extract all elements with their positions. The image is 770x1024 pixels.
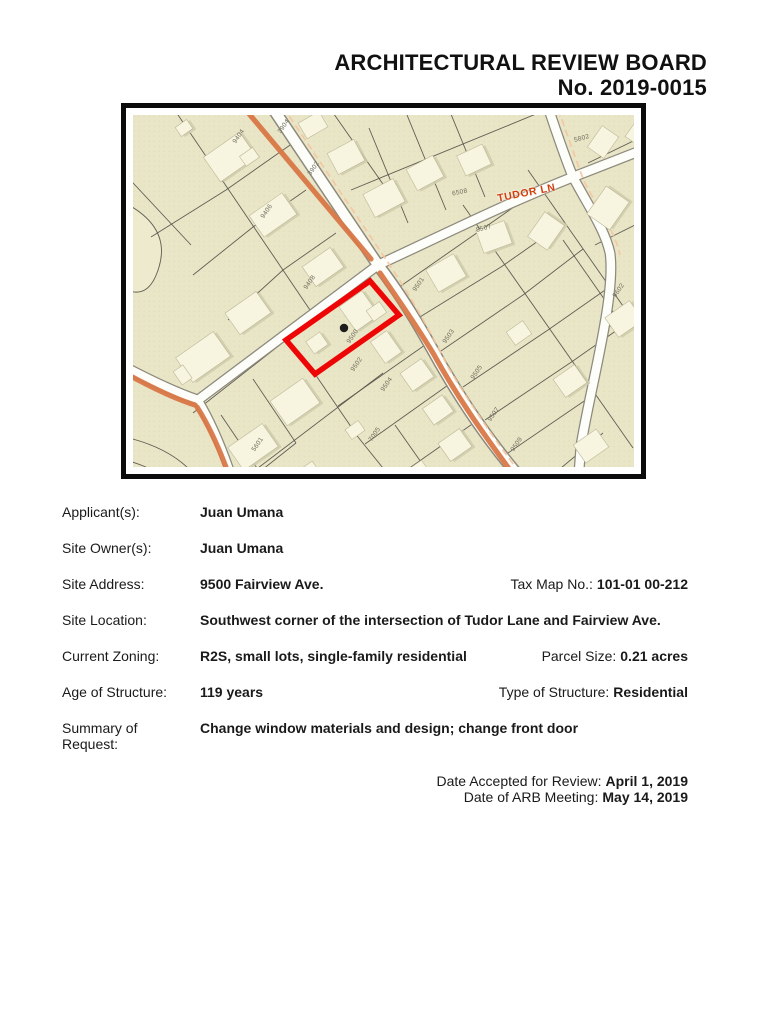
- subject-parcel-marker: [340, 324, 348, 332]
- field-label: Date of ARB Meeting:: [464, 789, 599, 805]
- field-label: Site Location:: [62, 612, 197, 628]
- field-label: Tax Map No.:: [510, 576, 592, 592]
- field-type-of-structure: Type of Structure:Residential: [499, 684, 688, 700]
- date-arb-meeting-row: Date of ARB Meeting:May 14, 2019: [437, 790, 688, 806]
- field-value: 119 years: [200, 684, 263, 700]
- location-map-figure: 9404390439029406940895029504950195039505…: [121, 103, 646, 479]
- page-title: ARCHITECTURAL REVIEW BOARD: [334, 50, 707, 75]
- document-header: ARCHITECTURAL REVIEW BOARD No. 2019-0015: [334, 50, 707, 100]
- field-value: 9500 Fairview Ave.: [200, 576, 323, 592]
- field-value: 0.21 acres: [620, 648, 688, 664]
- field-value: Juan Umana: [200, 504, 283, 520]
- field-label: Date Accepted for Review:: [437, 773, 602, 789]
- field-label: Site Owner(s):: [62, 540, 197, 556]
- review-dates: Date Accepted for Review:April 1, 2019 D…: [437, 774, 688, 805]
- field-label: Age of Structure:: [62, 684, 197, 700]
- field-label: Site Address:: [62, 576, 197, 592]
- field-value: Southwest corner of the intersection of …: [200, 612, 661, 628]
- field-value: 101-01 00-212: [597, 576, 688, 592]
- field-parcel-size: Parcel Size:0.21 acres: [542, 648, 688, 664]
- field-value: April 1, 2019: [606, 773, 689, 789]
- field-label: Parcel Size:: [542, 648, 617, 664]
- field-label: Applicant(s):: [62, 504, 197, 520]
- field-value: Change window materials and design; chan…: [200, 720, 578, 736]
- field-value: Juan Umana: [200, 540, 283, 556]
- case-number: No. 2019-0015: [334, 75, 707, 100]
- field-label: Summary of Request:: [62, 720, 157, 752]
- field-value: R2S, small lots, single-family residenti…: [200, 648, 467, 664]
- field-tax-map-no: Tax Map No.:101-01 00-212: [510, 576, 688, 592]
- field-value: Residential: [613, 684, 688, 700]
- field-label: Type of Structure:: [499, 684, 610, 700]
- document-page: ARCHITECTURAL REVIEW BOARD No. 2019-0015: [0, 0, 770, 1024]
- parcel-map-svg: [133, 115, 634, 467]
- location-map: 9404390439029406940895029504950195039505…: [133, 115, 634, 467]
- field-label: Current Zoning:: [62, 648, 197, 664]
- field-value: May 14, 2019: [602, 789, 688, 805]
- date-accepted-row: Date Accepted for Review:April 1, 2019: [437, 774, 688, 790]
